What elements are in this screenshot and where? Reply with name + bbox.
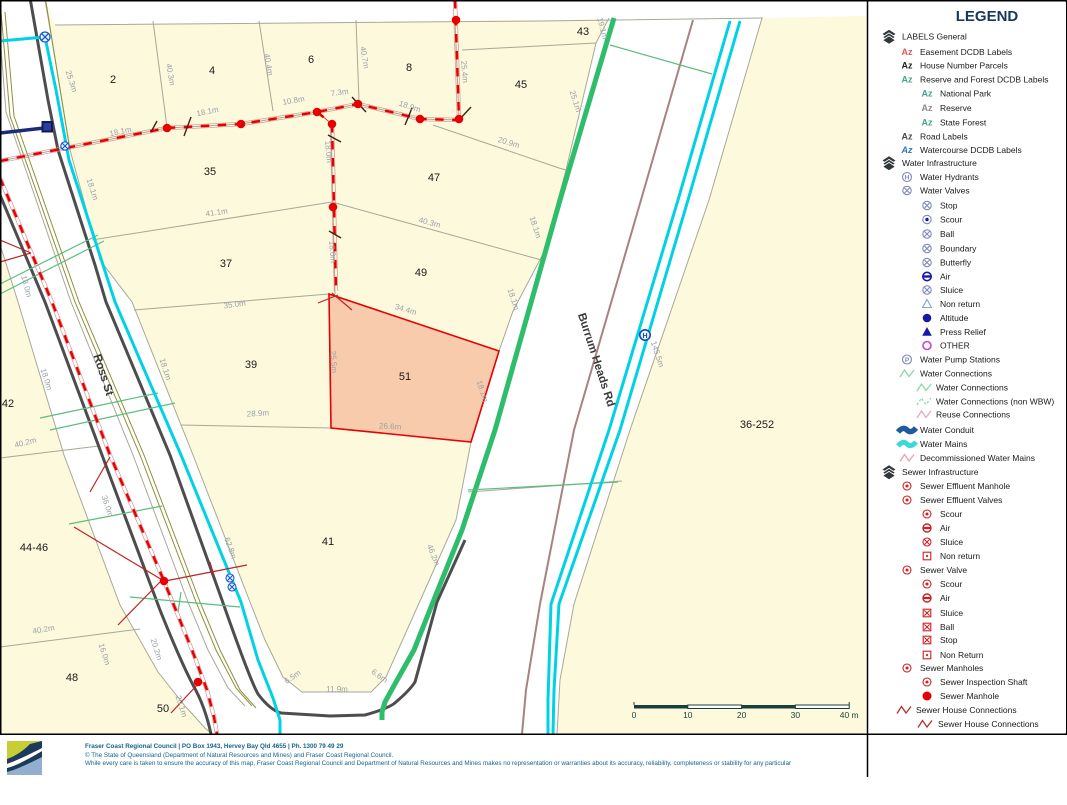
svg-text:48: 48 bbox=[66, 672, 78, 684]
svg-text:Az: Az bbox=[902, 132, 913, 142]
svg-text:28.9m: 28.9m bbox=[247, 408, 270, 418]
svg-text:50: 50 bbox=[157, 703, 169, 715]
svg-text:Non return: Non return bbox=[940, 299, 980, 309]
svg-text:41: 41 bbox=[322, 536, 334, 548]
svg-text:Decommissioned Water Mains: Decommissioned Water Mains bbox=[920, 453, 1035, 463]
svg-text:Boundary: Boundary bbox=[940, 244, 977, 254]
svg-text:Watercourse DCDB Labels: Watercourse DCDB Labels bbox=[920, 145, 1022, 155]
svg-text:0: 0 bbox=[632, 710, 637, 720]
svg-text:47: 47 bbox=[428, 172, 440, 184]
svg-text:11.9m: 11.9m bbox=[326, 685, 348, 694]
svg-text:Sluice: Sluice bbox=[940, 285, 963, 295]
svg-text:H: H bbox=[642, 333, 647, 340]
svg-text:8: 8 bbox=[406, 62, 412, 74]
svg-text:Sluice: Sluice bbox=[940, 537, 963, 547]
svg-text:Water Infrastructure: Water Infrastructure bbox=[902, 158, 977, 168]
svg-text:Road Labels: Road Labels bbox=[920, 132, 968, 142]
svg-text:43: 43 bbox=[577, 26, 589, 38]
svg-text:35: 35 bbox=[204, 166, 216, 178]
svg-text:Fraser Coast Regional Council: Fraser Coast Regional Council | PO Box 1… bbox=[85, 743, 344, 750]
svg-text:26.6m: 26.6m bbox=[379, 421, 402, 431]
svg-text:Reuse Connections: Reuse Connections bbox=[936, 410, 1010, 420]
svg-text:Press Relief: Press Relief bbox=[940, 327, 986, 337]
svg-text:Air: Air bbox=[940, 272, 951, 282]
svg-text:Az: Az bbox=[901, 145, 913, 155]
svg-text:OTHER: OTHER bbox=[940, 341, 970, 351]
svg-text:LABELS General: LABELS General bbox=[902, 32, 967, 42]
svg-text:Sewer House Connections: Sewer House Connections bbox=[916, 705, 1017, 715]
svg-text:Sewer Manhole: Sewer Manhole bbox=[940, 691, 999, 701]
svg-text:National Park: National Park bbox=[940, 89, 992, 99]
svg-text:Sewer Manholes: Sewer Manholes bbox=[920, 663, 983, 673]
svg-text:Sewer Effluent Manhole: Sewer Effluent Manhole bbox=[920, 481, 1010, 491]
svg-text:Stop: Stop bbox=[940, 635, 958, 645]
svg-text:Az: Az bbox=[922, 89, 933, 99]
svg-text:Water Connections (non WBW): Water Connections (non WBW) bbox=[936, 397, 1054, 407]
svg-text:H: H bbox=[905, 174, 910, 181]
svg-text:Ball: Ball bbox=[940, 622, 954, 632]
svg-text:Scour: Scour bbox=[940, 215, 962, 225]
svg-text:Sewer Effluent Valves: Sewer Effluent Valves bbox=[920, 495, 1002, 505]
svg-text:LEGEND: LEGEND bbox=[956, 8, 1019, 25]
svg-text:2: 2 bbox=[110, 74, 116, 86]
svg-text:Reserve: Reserve bbox=[940, 103, 972, 113]
svg-text:39: 39 bbox=[245, 359, 257, 371]
svg-text:Sewer Valve: Sewer Valve bbox=[920, 565, 967, 575]
svg-text:Scour: Scour bbox=[940, 509, 962, 519]
svg-text:© The State of Queensland (Dep: © The State of Queensland (Department of… bbox=[85, 751, 394, 759]
svg-text:Stop: Stop bbox=[940, 201, 958, 211]
svg-text:30: 30 bbox=[791, 710, 801, 720]
svg-text:Water Connections: Water Connections bbox=[936, 383, 1008, 393]
svg-text:Ball: Ball bbox=[940, 229, 954, 239]
svg-text:While every care is taken to e: While every care is taken to ensure the … bbox=[85, 760, 791, 767]
svg-text:Water Connections: Water Connections bbox=[920, 369, 992, 379]
svg-text:State Forest: State Forest bbox=[940, 118, 987, 128]
svg-text:Reserve and Forest DCDB Labels: Reserve and Forest DCDB Labels bbox=[920, 75, 1049, 85]
svg-text:Sewer House Connections: Sewer House Connections bbox=[938, 719, 1039, 729]
svg-text:Easement DCDB Labels: Easement DCDB Labels bbox=[920, 47, 1012, 57]
svg-text:Sewer Infrastructure: Sewer Infrastructure bbox=[902, 467, 979, 477]
svg-text:Az: Az bbox=[922, 118, 933, 128]
svg-text:42: 42 bbox=[2, 398, 14, 410]
svg-text:51: 51 bbox=[399, 371, 411, 383]
svg-text:Butterfly: Butterfly bbox=[940, 258, 972, 268]
svg-text:Air: Air bbox=[940, 593, 951, 603]
svg-text:40 m: 40 m bbox=[840, 710, 859, 720]
svg-text:49: 49 bbox=[415, 267, 427, 279]
svg-text:Az: Az bbox=[922, 103, 933, 113]
svg-text:Water Conduit: Water Conduit bbox=[920, 425, 975, 435]
svg-text:Az: Az bbox=[902, 47, 913, 57]
svg-text:Az: Az bbox=[902, 75, 913, 85]
svg-text:36-252: 36-252 bbox=[740, 419, 774, 431]
svg-text:4: 4 bbox=[209, 65, 215, 77]
svg-text:20: 20 bbox=[737, 710, 747, 720]
svg-text:Non Return: Non Return bbox=[940, 650, 984, 660]
svg-text:10: 10 bbox=[683, 710, 693, 720]
svg-text:Altitude: Altitude bbox=[940, 313, 969, 323]
svg-text:Sluice: Sluice bbox=[940, 608, 963, 618]
svg-text:6: 6 bbox=[308, 54, 314, 66]
svg-text:Sewer Inspection Shaft: Sewer Inspection Shaft bbox=[940, 677, 1028, 687]
svg-text:Az: Az bbox=[902, 61, 913, 71]
svg-text:25.5m: 25.5m bbox=[328, 351, 338, 374]
svg-text:P: P bbox=[905, 357, 910, 364]
svg-text:Water Hydrants: Water Hydrants bbox=[920, 172, 979, 182]
svg-text:Air: Air bbox=[940, 523, 951, 533]
svg-text:37: 37 bbox=[220, 258, 232, 270]
svg-text:Water Mains: Water Mains bbox=[920, 439, 967, 449]
svg-text:Scour: Scour bbox=[940, 579, 962, 589]
svg-text:Water Pump Stations: Water Pump Stations bbox=[920, 355, 1000, 365]
svg-text:House Number Parcels: House Number Parcels bbox=[920, 61, 1008, 71]
svg-text:44-46: 44-46 bbox=[20, 542, 48, 554]
svg-text:Water Valves: Water Valves bbox=[920, 186, 970, 196]
svg-text:Non return: Non return bbox=[940, 551, 980, 561]
svg-text:45: 45 bbox=[515, 79, 527, 91]
